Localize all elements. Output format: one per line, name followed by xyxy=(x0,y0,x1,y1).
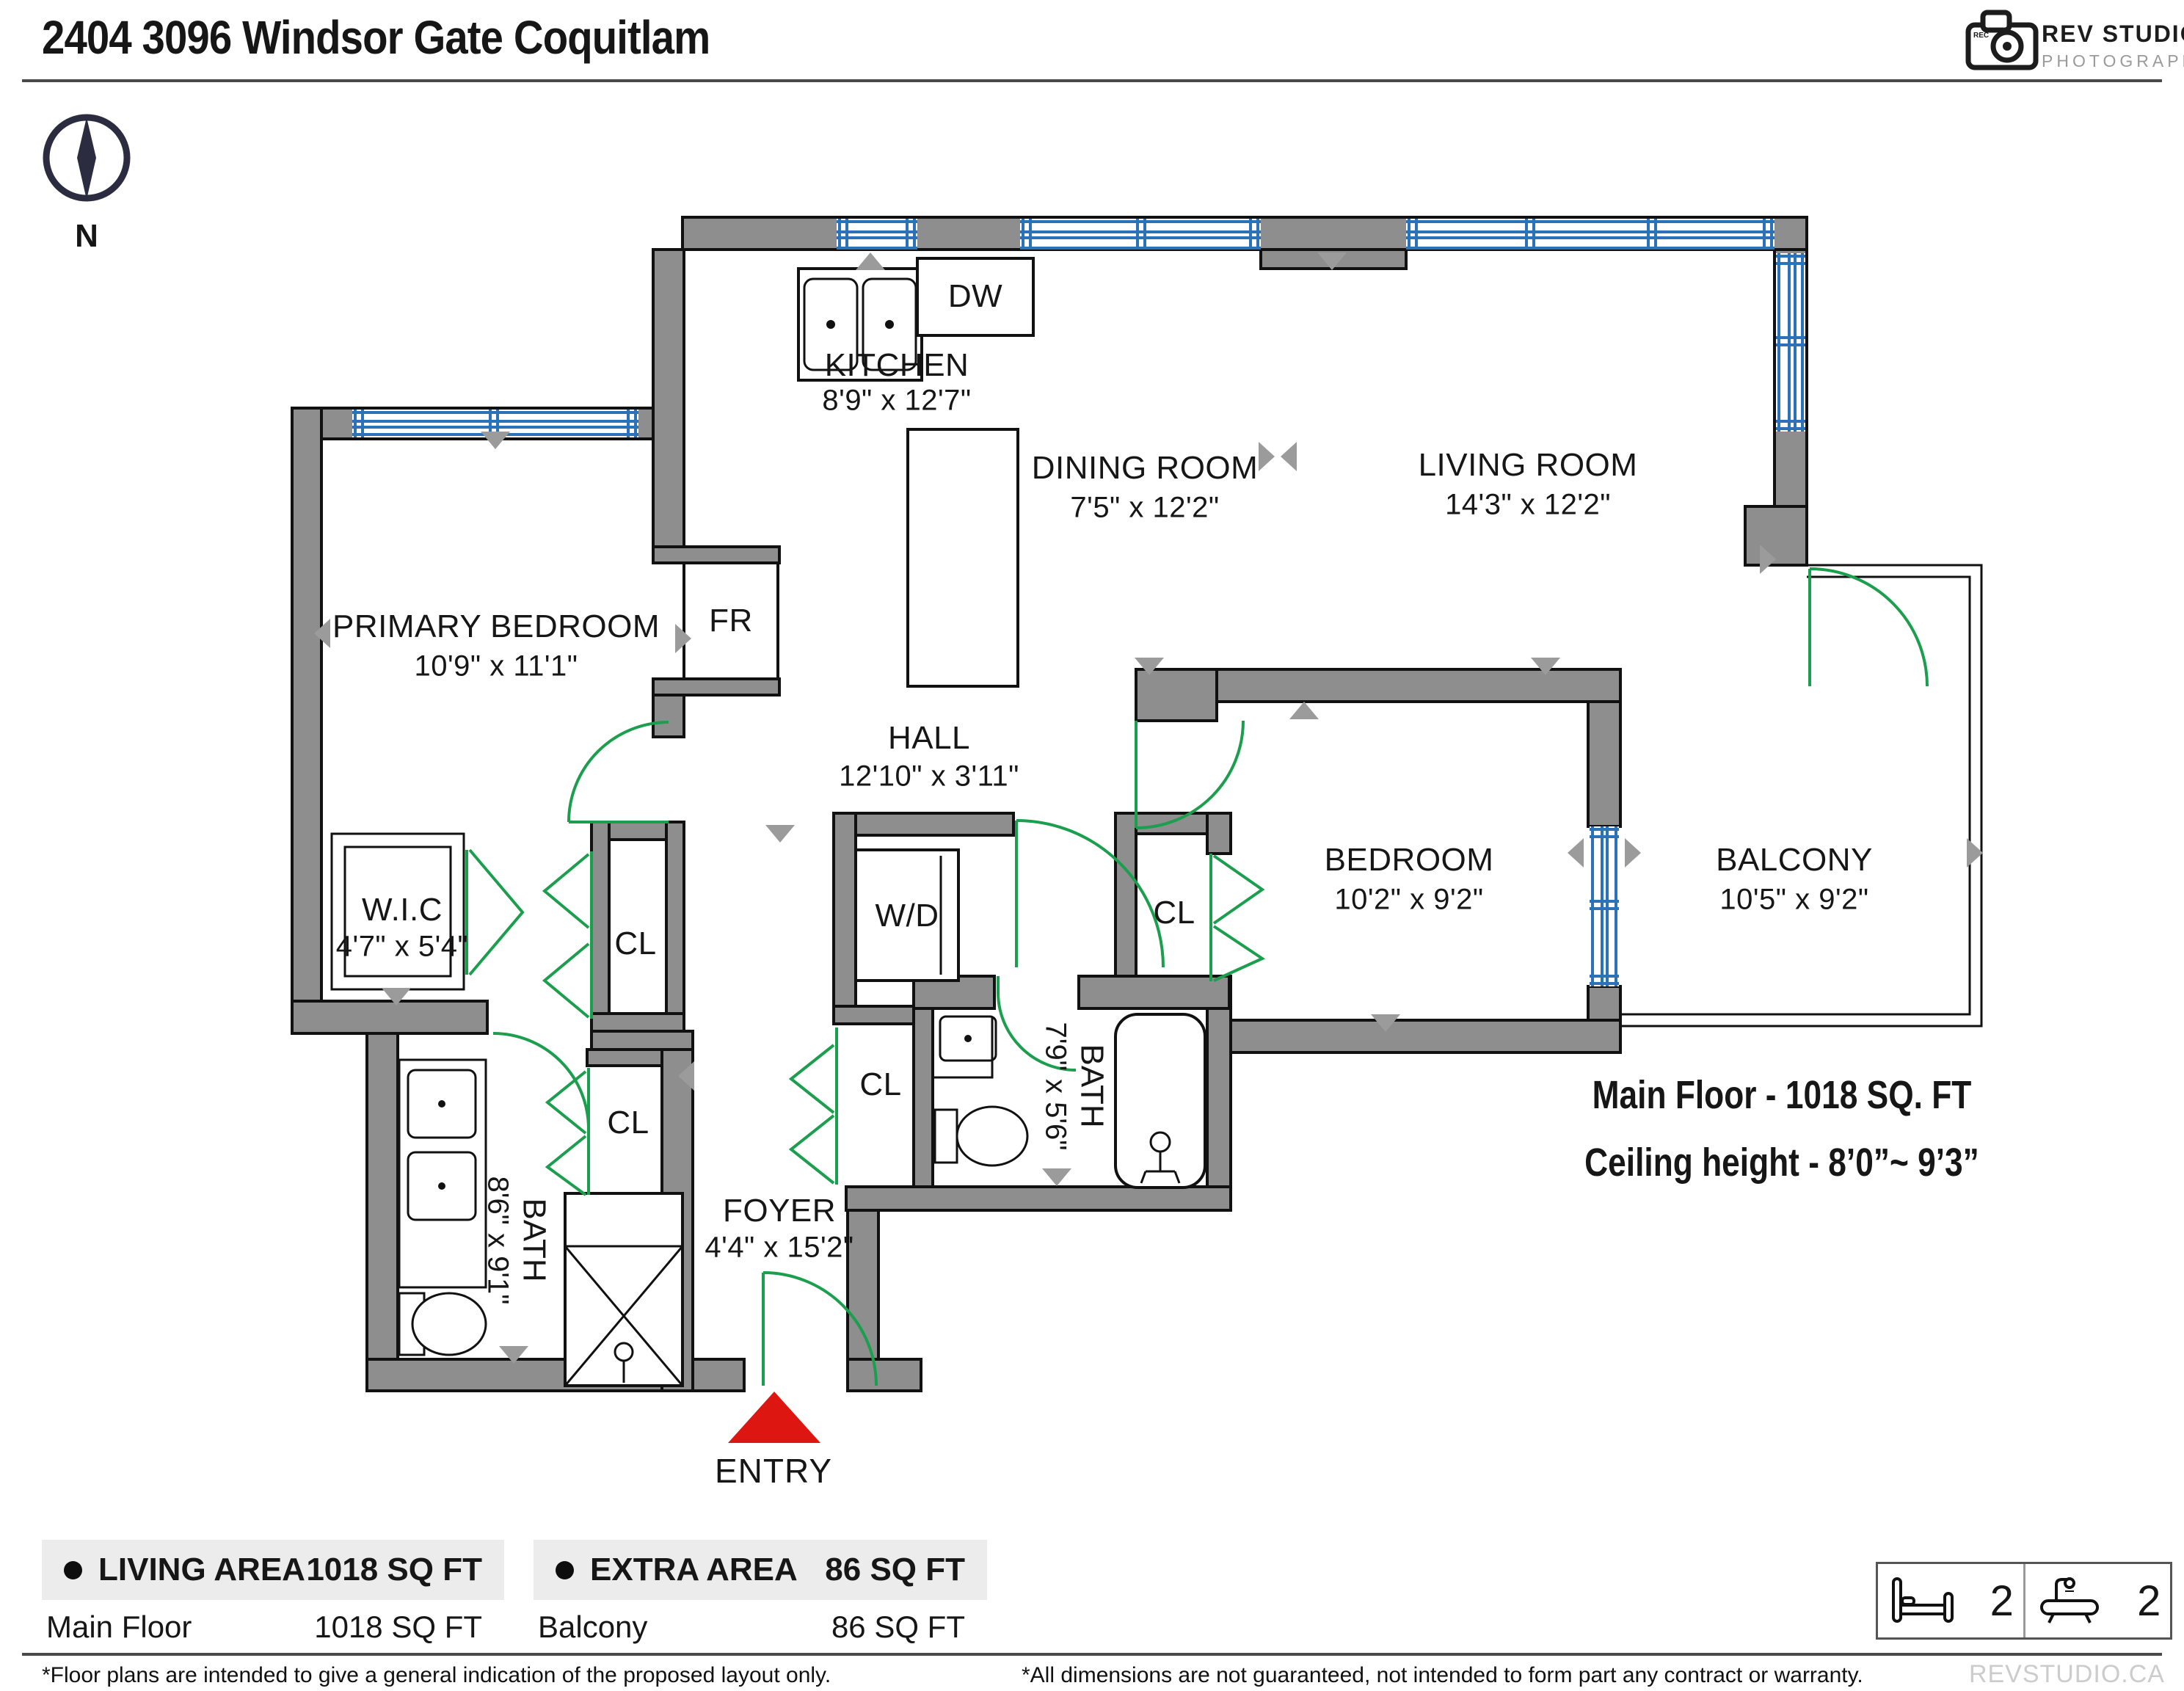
kitchen-dims: 8'9" x 12'7" xyxy=(822,385,971,418)
closet-bifold xyxy=(1211,854,1262,981)
shower-drain xyxy=(615,1343,633,1361)
balcony-label: BALCONY xyxy=(1716,842,1873,879)
dining-room-label: DINING ROOM xyxy=(1032,450,1259,487)
extra-area-title: EXTRA AREA xyxy=(590,1552,798,1588)
row-value: 86 SQ FT xyxy=(831,1610,965,1645)
wic-door xyxy=(467,850,523,975)
foyer-label: FOYER xyxy=(723,1193,836,1229)
entry-label: ENTRY xyxy=(715,1451,832,1491)
bedroom-count: 2 xyxy=(1878,1564,2025,1637)
closet-label: CL xyxy=(614,925,656,962)
balcony-outline xyxy=(1620,565,1981,1026)
bedroom-dims: 10'2" x 9'2" xyxy=(1334,884,1483,917)
row-label: Balcony xyxy=(538,1610,647,1645)
kitchen-label: KITCHEN xyxy=(825,347,969,384)
tub-faucet xyxy=(1151,1132,1170,1152)
bullet-icon xyxy=(556,1561,574,1579)
footer-disclaimer-left: *Floor plans are intended to give a gene… xyxy=(42,1663,831,1688)
laundry-door xyxy=(1016,821,1163,967)
row-value: 1018 SQ FT xyxy=(314,1610,482,1645)
bath-name: BATH xyxy=(1073,1022,1110,1151)
closet-label: CL xyxy=(1153,895,1195,931)
living-area-total: 1018 SQ FT xyxy=(306,1552,482,1588)
primary-bedroom-dims: 10'9" x 11'1" xyxy=(415,650,578,683)
extra-area-header: EXTRA AREA 86 SQ FT xyxy=(534,1540,987,1600)
dishwasher-label: DW xyxy=(948,278,1002,315)
living-area-title: LIVING AREA xyxy=(98,1552,305,1588)
balcony-dims: 10'5" x 9'2" xyxy=(1719,884,1868,917)
extra-area-total: 86 SQ FT xyxy=(825,1552,965,1588)
ceiling-note: Ceiling height - 8’0”~ 9’3” xyxy=(1584,1140,1979,1185)
bedroom-count-value: 2 xyxy=(1990,1577,2014,1626)
closet-label: CL xyxy=(607,1105,649,1141)
primary-bedroom-label: PRIMARY BEDROOM xyxy=(332,608,660,645)
primary-bath-label: BATH 8'6" x 9'1" xyxy=(481,1177,553,1305)
table-row: Balcony 86 SQ FT xyxy=(534,1600,987,1654)
living-room-label: LIVING ROOM xyxy=(1419,447,1638,484)
floorplan-page: 2404 3096 Windsor Gate Coquitlam REC REV… xyxy=(0,0,2184,1691)
closet-bifold xyxy=(545,851,591,1019)
kitchen-island xyxy=(908,429,1018,686)
area-note: Main Floor - 1018 SQ. FT xyxy=(1592,1072,1972,1118)
fridge-label: FR xyxy=(709,603,753,639)
wic-dims: 4'7" x 5'4" xyxy=(336,931,468,964)
bath-icon xyxy=(2034,1574,2105,1627)
bathroom-count: 2 xyxy=(2025,1564,2171,1637)
entry-arrow xyxy=(728,1392,820,1443)
washer-dryer-label: W/D xyxy=(875,898,939,934)
hall-dims: 12'10" x 3'11" xyxy=(839,760,1019,793)
wic-label: W.I.C xyxy=(362,892,443,928)
dining-room-dims: 7'5" x 12'2" xyxy=(1070,492,1219,525)
bed-icon xyxy=(1888,1574,1958,1627)
bath-dims: 8'6" x 9'1" xyxy=(481,1177,515,1305)
bath-name: BATH xyxy=(515,1177,553,1305)
footer-disclaimer-right: *All dimensions are not guaranteed, not … xyxy=(1022,1663,1863,1688)
bath-dims: 7'9" x 5'6" xyxy=(1039,1022,1073,1151)
hall-label: HALL xyxy=(888,720,970,757)
toilet-bowl xyxy=(957,1107,1027,1165)
footer-divider xyxy=(22,1653,2162,1656)
bedroom-label: BEDROOM xyxy=(1325,842,1494,879)
balcony-door xyxy=(1810,569,1927,686)
main-bath-label: BATH 7'9" x 5'6" xyxy=(1039,1022,1110,1151)
bathroom-count-value: 2 xyxy=(2137,1577,2161,1626)
stats-box: 2 2 xyxy=(1876,1562,2172,1640)
footer-brand: REVSTUDIO.CA xyxy=(1969,1660,2165,1689)
closet-bifold xyxy=(547,1068,589,1195)
toilet-bowl xyxy=(412,1293,486,1355)
bullet-icon xyxy=(64,1561,82,1579)
row-label: Main Floor xyxy=(46,1610,192,1645)
living-room-dims: 14'3" x 12'2" xyxy=(1445,489,1611,522)
living-area-table: LIVING AREA 1018 SQ FT Main Floor 1018 S… xyxy=(42,1540,504,1654)
extra-area-table: EXTRA AREA 86 SQ FT Balcony 86 SQ FT xyxy=(534,1540,987,1654)
toilet-tank xyxy=(935,1110,957,1163)
closet-label: CL xyxy=(859,1066,901,1103)
closet-bifold xyxy=(791,1028,837,1185)
living-area-header: LIVING AREA 1018 SQ FT xyxy=(42,1540,504,1600)
foyer-dims: 4'4" x 15'2" xyxy=(705,1232,853,1265)
primary-bath-door xyxy=(493,1033,589,1129)
table-row: Main Floor 1018 SQ FT xyxy=(42,1600,504,1654)
